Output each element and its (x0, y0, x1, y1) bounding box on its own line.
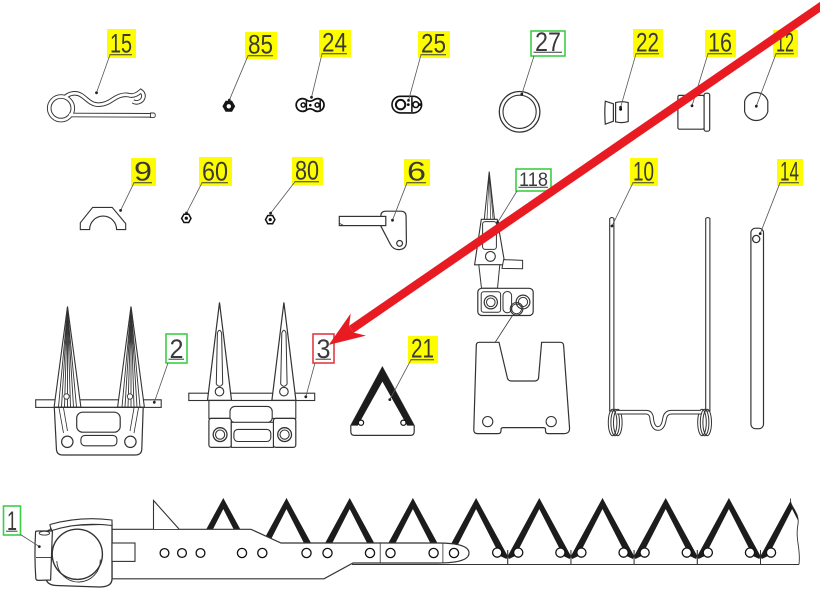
svg-text:1: 1 (7, 506, 17, 536)
svg-text:14: 14 (780, 157, 799, 187)
svg-text:24: 24 (322, 28, 347, 58)
svg-text:22: 22 (636, 28, 659, 58)
svg-text:21: 21 (411, 334, 434, 364)
svg-text:80: 80 (295, 156, 319, 186)
svg-text:16: 16 (708, 28, 732, 58)
svg-text:118: 118 (519, 170, 548, 191)
svg-text:15: 15 (110, 29, 132, 59)
svg-text:2: 2 (170, 334, 184, 364)
svg-text:85: 85 (248, 30, 273, 60)
svg-text:10: 10 (633, 157, 654, 187)
svg-text:25: 25 (421, 29, 446, 59)
svg-text:60: 60 (202, 157, 228, 187)
svg-text:3: 3 (317, 334, 331, 364)
svg-text:27: 27 (535, 27, 561, 57)
svg-text:9: 9 (134, 157, 152, 187)
svg-text:6: 6 (407, 157, 426, 187)
